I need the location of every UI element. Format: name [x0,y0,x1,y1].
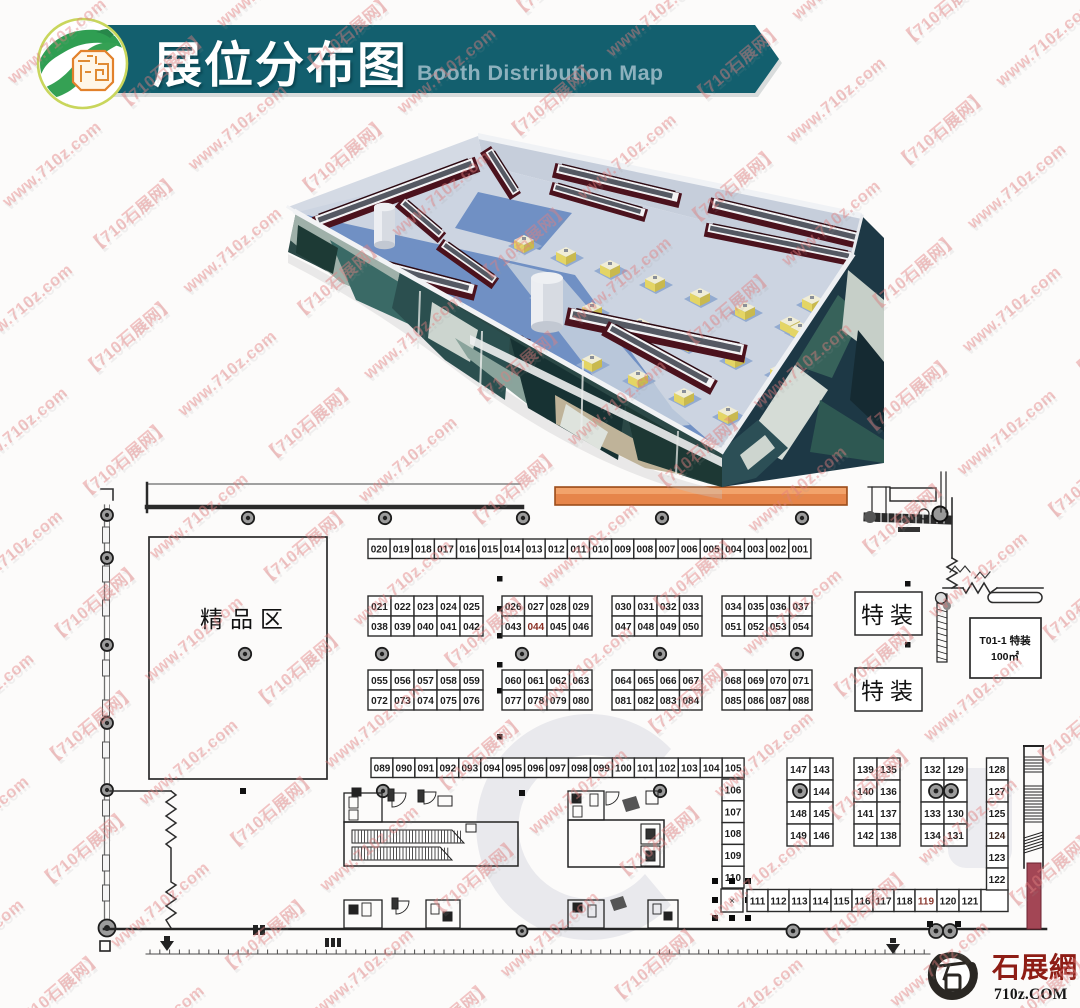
svg-text:034: 034 [725,602,742,613]
svg-text:030: 030 [615,602,632,613]
svg-text:064: 064 [615,676,632,687]
svg-text:097: 097 [549,764,566,775]
svg-text:082: 082 [637,696,654,707]
svg-text:015: 015 [481,545,498,556]
svg-text:104: 104 [703,764,720,775]
svg-text:075: 075 [440,696,457,707]
svg-text:091: 091 [418,764,435,775]
svg-text:109: 109 [725,851,742,862]
svg-text:014: 014 [504,545,521,556]
svg-text:040: 040 [417,622,434,633]
svg-text:002: 002 [769,545,786,556]
svg-text:143: 143 [813,765,830,776]
svg-text:019: 019 [393,545,410,556]
svg-text:113: 113 [791,897,808,908]
svg-text:120: 120 [940,897,957,908]
svg-text:035: 035 [747,602,764,613]
svg-text:133: 133 [924,809,941,820]
svg-text:001: 001 [792,545,809,556]
svg-text:023: 023 [417,602,434,613]
svg-text:148: 148 [790,809,807,820]
svg-text:038: 038 [371,622,388,633]
svg-text:089: 089 [374,764,391,775]
svg-text:118: 118 [896,897,913,908]
svg-text:060: 060 [505,676,522,687]
svg-text:061: 061 [527,676,544,687]
svg-text:特装: 特装 [861,679,919,704]
svg-text:102: 102 [659,764,676,775]
svg-text:103: 103 [681,764,698,775]
svg-text:045: 045 [550,622,567,633]
svg-text:066: 066 [660,676,677,687]
svg-text:121: 121 [962,897,979,908]
svg-text:115: 115 [833,897,850,908]
svg-text:112: 112 [770,897,787,908]
svg-text:129: 129 [947,765,964,776]
svg-text:007: 007 [659,545,676,556]
svg-text:081: 081 [615,696,632,707]
svg-text:029: 029 [572,602,589,613]
svg-text:028: 028 [550,602,567,613]
svg-text:065: 065 [637,676,654,687]
svg-text:039: 039 [394,622,411,633]
svg-text:128: 128 [989,765,1006,776]
svg-text:059: 059 [463,676,480,687]
svg-text:046: 046 [572,622,589,633]
svg-text:144: 144 [813,787,830,798]
svg-text:147: 147 [790,765,807,776]
svg-text:096: 096 [527,764,544,775]
svg-text:012: 012 [548,545,565,556]
svg-text:095: 095 [505,764,522,775]
svg-text:138: 138 [880,831,897,842]
svg-text:041: 041 [440,622,457,633]
svg-text:025: 025 [463,602,480,613]
svg-text:123: 123 [989,853,1006,864]
svg-text:008: 008 [637,545,654,556]
svg-text:119: 119 [918,897,935,908]
svg-text:049: 049 [660,622,677,633]
svg-text:013: 013 [526,545,543,556]
svg-text:076: 076 [463,696,480,707]
svg-text:044: 044 [527,622,544,633]
svg-text:077: 077 [505,696,522,707]
svg-text:101: 101 [637,764,654,775]
svg-text:033: 033 [682,602,699,613]
svg-text:069: 069 [747,676,764,687]
svg-text:086: 086 [747,696,764,707]
svg-text:085: 085 [725,696,742,707]
svg-text:114: 114 [812,897,829,908]
svg-text:070: 070 [770,676,787,687]
svg-text:137: 137 [880,809,897,820]
svg-text:050: 050 [682,622,699,633]
svg-text:003: 003 [747,545,764,556]
svg-text:141: 141 [857,809,874,820]
svg-text:024: 024 [440,602,457,613]
svg-text:142: 142 [857,831,874,842]
svg-text:124: 124 [989,831,1006,842]
svg-text:088: 088 [792,696,809,707]
svg-text:132: 132 [924,765,941,776]
svg-text:080: 080 [572,696,589,707]
svg-text:006: 006 [681,545,698,556]
svg-text:071: 071 [792,676,809,687]
svg-text:122: 122 [989,875,1006,886]
svg-text:055: 055 [371,676,388,687]
svg-text:051: 051 [725,622,742,633]
svg-text:087: 087 [770,696,787,707]
svg-text:020: 020 [371,545,388,556]
svg-text:009: 009 [614,545,631,556]
svg-text:107: 107 [725,807,742,818]
svg-text:108: 108 [725,829,742,840]
svg-text:090: 090 [396,764,413,775]
